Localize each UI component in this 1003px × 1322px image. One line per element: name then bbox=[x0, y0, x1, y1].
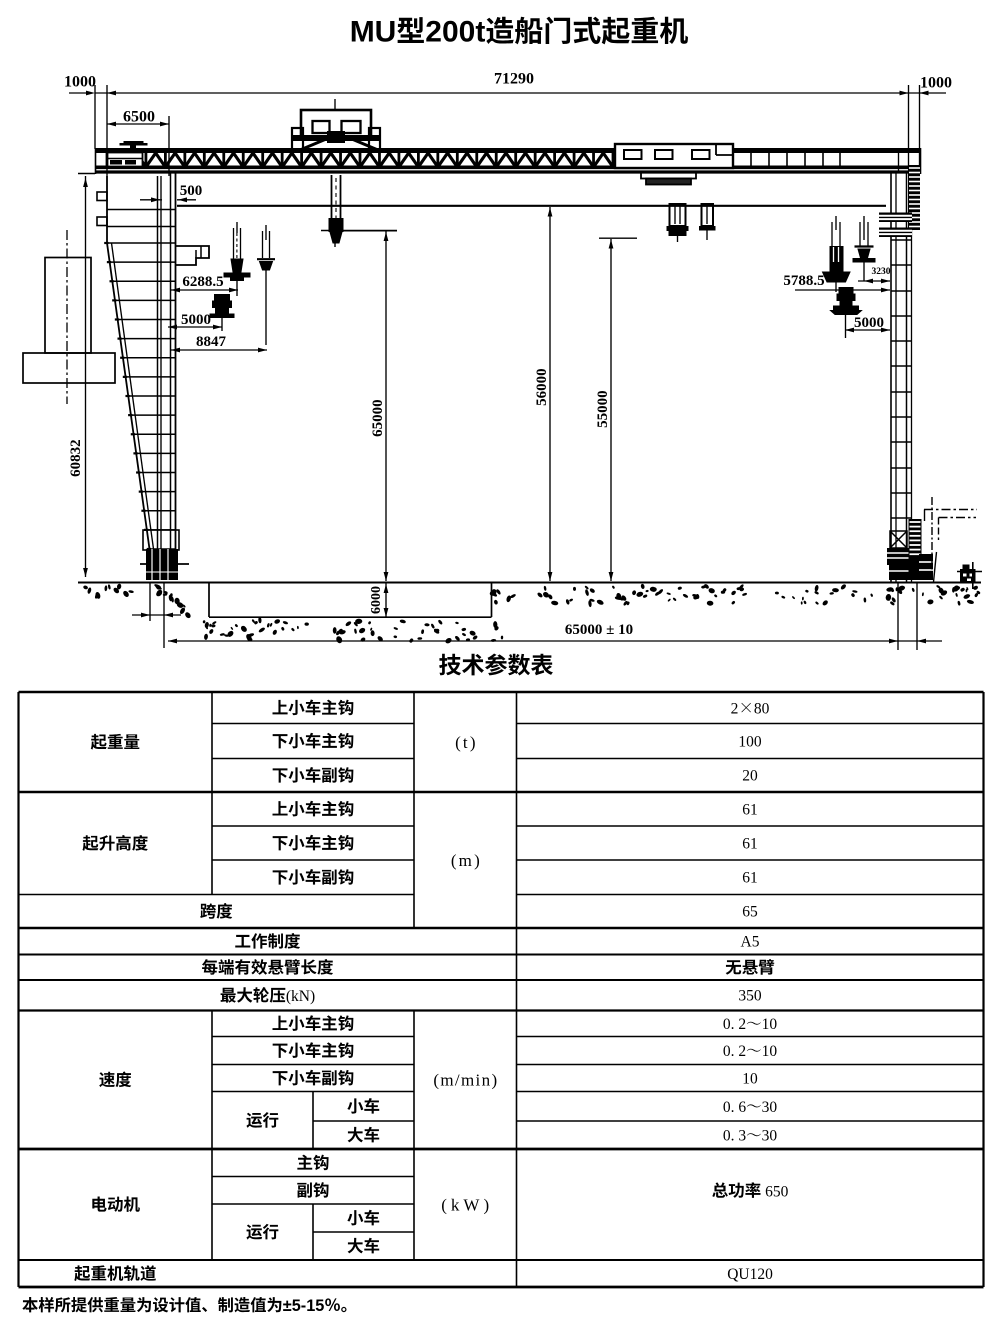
svg-text:71290: 71290 bbox=[494, 71, 534, 88]
svg-text:65: 65 bbox=[742, 904, 758, 921]
svg-text:(t): (t) bbox=[455, 733, 478, 752]
svg-text:0. 2: 0. 2 bbox=[723, 1016, 746, 1033]
svg-text:20: 20 bbox=[742, 768, 758, 785]
svg-text:(m): (m) bbox=[451, 851, 482, 870]
svg-text:65000 ± 10: 65000 ± 10 bbox=[565, 622, 633, 638]
svg-text:55000: 55000 bbox=[595, 390, 611, 428]
svg-text:30: 30 bbox=[762, 1099, 778, 1116]
svg-text:350: 350 bbox=[738, 988, 762, 1005]
svg-text:100: 100 bbox=[738, 733, 762, 750]
svg-text:30: 30 bbox=[762, 1128, 778, 1145]
svg-text:200t: 200t bbox=[425, 15, 485, 48]
svg-text:(kW): (kW) bbox=[441, 1196, 493, 1215]
svg-text:5000: 5000 bbox=[181, 312, 211, 328]
svg-text:1000: 1000 bbox=[64, 74, 96, 91]
svg-text:61: 61 bbox=[742, 801, 758, 818]
svg-text:6500: 6500 bbox=[123, 109, 155, 126]
svg-text:10: 10 bbox=[762, 1016, 778, 1033]
svg-text:QU120: QU120 bbox=[727, 1266, 773, 1283]
svg-text:10: 10 bbox=[742, 1070, 758, 1087]
svg-text:2: 2 bbox=[731, 700, 739, 717]
svg-text:61: 61 bbox=[742, 870, 758, 887]
svg-text:0. 3: 0. 3 bbox=[723, 1128, 747, 1145]
svg-text:65000: 65000 bbox=[370, 399, 386, 437]
svg-text:A5: A5 bbox=[741, 934, 760, 951]
svg-text:(kN): (kN) bbox=[286, 988, 315, 1005]
svg-text:0. 2: 0. 2 bbox=[723, 1043, 746, 1060]
svg-text:6000: 6000 bbox=[369, 586, 384, 614]
svg-text:MU: MU bbox=[350, 15, 397, 48]
svg-text:5000: 5000 bbox=[854, 315, 884, 331]
svg-text:500: 500 bbox=[180, 183, 203, 199]
svg-text:60832: 60832 bbox=[68, 439, 84, 477]
svg-text:80: 80 bbox=[754, 700, 770, 717]
svg-text:3230: 3230 bbox=[872, 267, 891, 277]
svg-text:1000: 1000 bbox=[920, 75, 952, 92]
svg-text:(m/min): (m/min) bbox=[433, 1071, 498, 1090]
svg-text:56000: 56000 bbox=[534, 368, 550, 406]
svg-text:6288.5: 6288.5 bbox=[182, 274, 223, 290]
svg-text:±5-15: ±5-15 bbox=[283, 1297, 325, 1315]
svg-text:5788.5: 5788.5 bbox=[783, 273, 824, 289]
svg-text:61: 61 bbox=[742, 835, 758, 852]
svg-text:650: 650 bbox=[761, 1183, 788, 1200]
svg-text:0. 6: 0. 6 bbox=[723, 1099, 747, 1116]
svg-text:8847: 8847 bbox=[196, 334, 227, 350]
svg-text:10: 10 bbox=[762, 1043, 778, 1060]
